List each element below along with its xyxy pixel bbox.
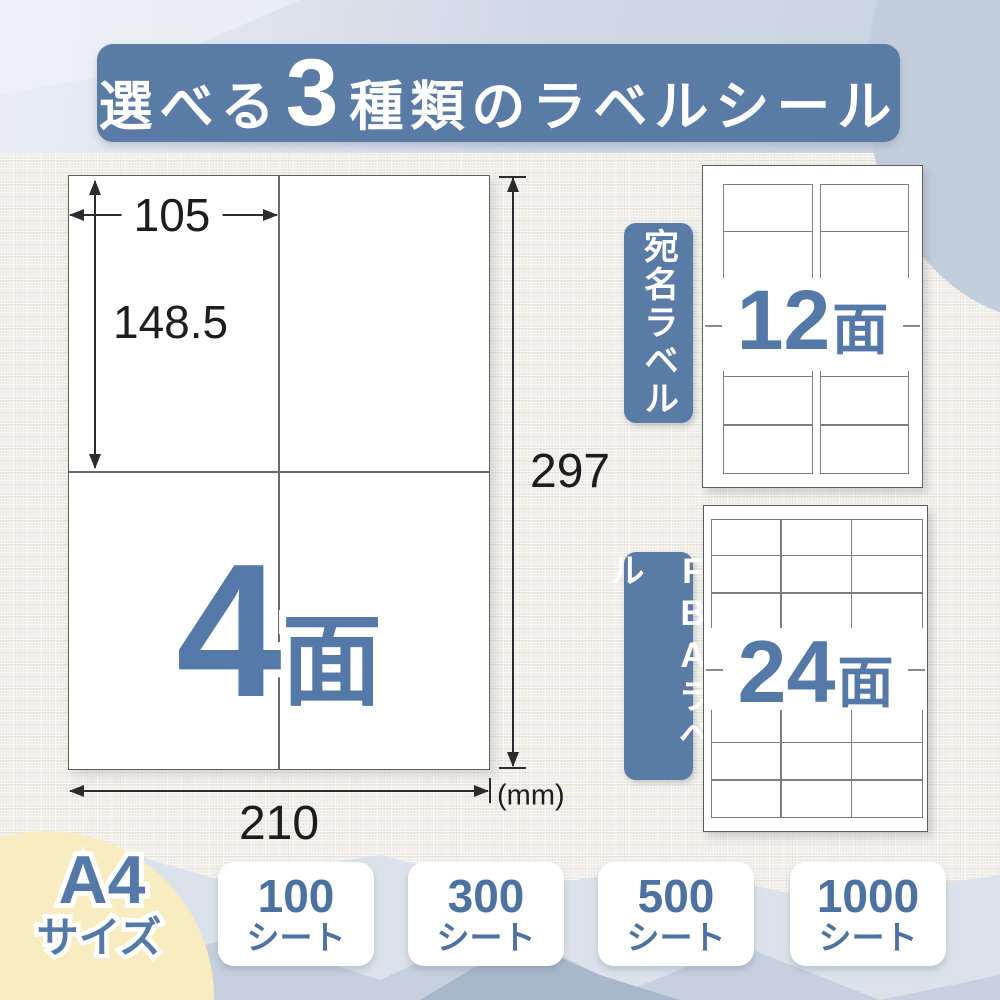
sheet-option-500: 500 シート: [598, 862, 754, 966]
label-cell: [820, 231, 910, 281]
sheet-12men: 12面: [702, 165, 923, 488]
main-count-unit: 面: [282, 612, 382, 712]
label-cell: [851, 779, 923, 818]
dimension-line-297: [512, 178, 514, 766]
dimension-unit-label: (mm): [497, 782, 565, 811]
dimension-value-297: 297: [530, 448, 610, 496]
dimension-line-148: [94, 181, 96, 468]
label-cell: [780, 742, 852, 781]
label-sheet-product-image: 選べる 3 種類のラベルシール 4面 105 148.5 297 210 (mm…: [0, 0, 1000, 1000]
count-band-24: 24面: [704, 628, 927, 710]
label-cell: [780, 779, 852, 818]
title-prefix: 選べる: [99, 58, 282, 156]
label-cell: [851, 742, 923, 781]
dimension-value-148: 148.5: [113, 299, 228, 345]
label-cell: [711, 519, 782, 556]
count-band-12: 12面: [703, 278, 922, 371]
label-cell: [851, 519, 923, 556]
sheet-option-count: 100: [258, 872, 335, 920]
sheet-option-count: 1000: [817, 872, 919, 920]
arrowhead-icon: [69, 209, 84, 221]
sheet-option-unit: シート: [627, 920, 726, 956]
label-cell: [711, 779, 782, 818]
sheet-option-unit: シート: [819, 920, 918, 956]
count-unit-12: 面: [832, 302, 888, 358]
sheet-option-count: 300: [448, 872, 525, 920]
label-cell: [780, 519, 852, 556]
label-cell: [851, 555, 923, 594]
count-unit-24: 面: [837, 655, 893, 711]
label-cell: [851, 592, 923, 631]
sheet-24men: 24面: [703, 505, 928, 832]
label-cell: [711, 555, 782, 594]
dimension-value-105: 105: [122, 192, 223, 238]
hidden-line-dash: [706, 669, 723, 671]
hidden-line-dash: [705, 325, 722, 327]
arrowhead-icon: [507, 752, 519, 767]
label-cell: [723, 424, 813, 474]
label-cell: [820, 184, 910, 232]
count-number-12: 12: [737, 278, 830, 362]
sheet-option-count: 500: [638, 872, 715, 920]
arrowhead-icon: [507, 177, 519, 192]
dimension-tick: [499, 767, 526, 769]
arrowhead-icon: [89, 180, 101, 195]
hidden-line-dash: [908, 669, 925, 671]
sheet-option-unit: シート: [437, 920, 536, 956]
dimension-line-210: [70, 790, 488, 792]
count-number-24: 24: [738, 628, 836, 716]
label-cell: [711, 742, 782, 781]
sheet-divider-horizontal: [69, 471, 489, 473]
sheet-option-1000: 1000 シート: [790, 862, 946, 966]
title-banner: 選べる 3 種類のラベルシール: [97, 44, 900, 142]
label-cell: [780, 555, 852, 594]
title-suffix: 種類のラベルシール: [349, 58, 898, 156]
dimension-value-210: 210: [239, 800, 319, 848]
label-cell: [820, 424, 910, 474]
label-cell: [723, 184, 813, 232]
main-count-label: 4面: [176, 536, 382, 726]
banner-atena-label: 宛名ラベル: [624, 223, 693, 423]
sheet-option-unit: シート: [247, 920, 346, 956]
sheet-option-300: 300 シート: [408, 862, 564, 966]
label-cell: [820, 376, 910, 426]
a4-size-text: A4: [59, 846, 146, 914]
banner-fba-label: FBAラベル: [624, 552, 693, 780]
arrowhead-icon: [474, 785, 489, 797]
arrowhead-icon: [263, 209, 278, 221]
main-sheet-4men: 4面: [68, 175, 490, 770]
dimension-tick: [489, 778, 491, 803]
a4-size-subtext: サイズ: [37, 917, 162, 959]
arrowhead-icon: [69, 785, 84, 797]
label-cell: [723, 376, 813, 426]
title-number: 3: [286, 44, 346, 142]
hidden-line-dash: [903, 325, 920, 327]
arrowhead-icon: [89, 454, 101, 469]
main-count-number: 4: [176, 536, 282, 726]
sheet-option-100: 100 シート: [218, 862, 374, 966]
